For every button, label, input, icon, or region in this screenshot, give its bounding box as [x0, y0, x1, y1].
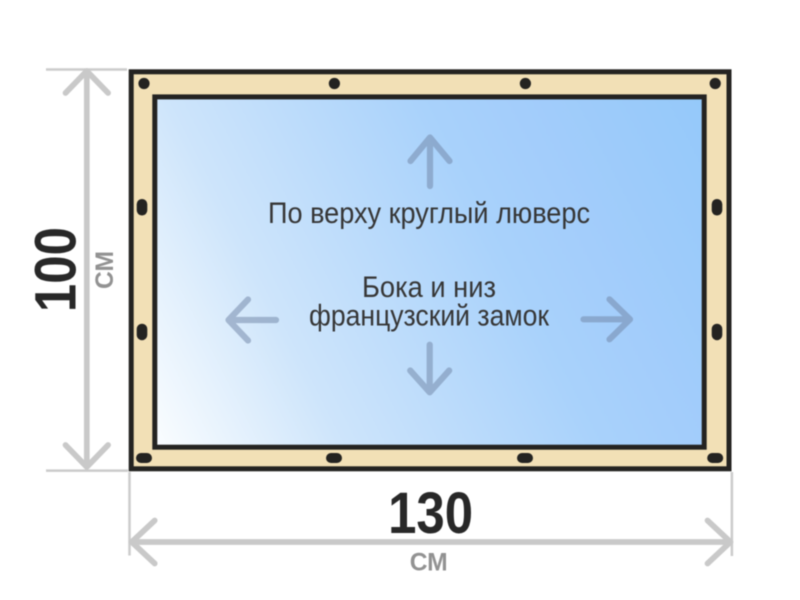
svg-text:130: 130: [388, 481, 473, 546]
svg-text:По верху круглый люверс: По верху круглый люверс: [268, 197, 590, 230]
svg-text:французский замок: французский замок: [309, 299, 550, 332]
svg-text:100: 100: [24, 227, 89, 312]
svg-text:СМ: СМ: [91, 251, 119, 289]
svg-text:СМ: СМ: [410, 548, 448, 576]
